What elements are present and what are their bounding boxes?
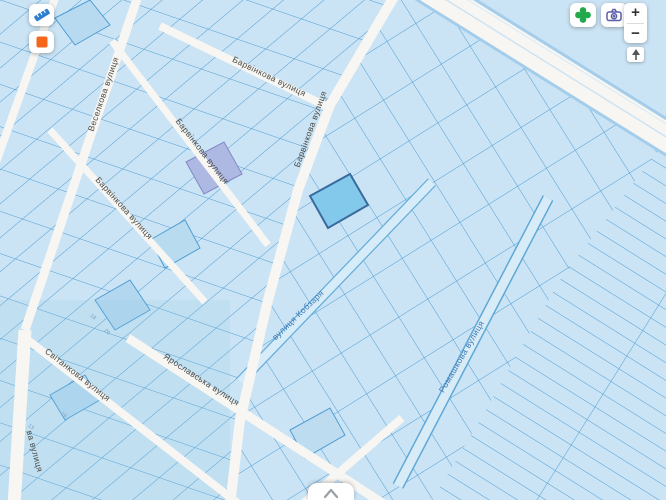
map-canvas[interactable]: Веселкова вулицяБарвінкова вулицяБарвінк… xyxy=(0,0,666,500)
layers-button[interactable] xyxy=(570,3,596,27)
zoom-control: + − xyxy=(624,3,647,43)
orange-square-icon xyxy=(34,34,50,50)
zoom-out-button[interactable]: − xyxy=(624,24,647,44)
north-arrow-icon xyxy=(630,48,642,61)
chevron-up-icon xyxy=(321,487,341,500)
bottom-drawer-button[interactable] xyxy=(308,483,354,500)
zoom-in-button[interactable]: + xyxy=(624,3,647,23)
clover-icon xyxy=(574,6,592,24)
camera-icon xyxy=(605,6,623,24)
ruler-icon xyxy=(33,7,51,23)
rectangle-tool-button[interactable] xyxy=(29,31,54,53)
reset-north-button[interactable] xyxy=(627,47,644,62)
measure-tool-button[interactable] xyxy=(29,4,54,26)
